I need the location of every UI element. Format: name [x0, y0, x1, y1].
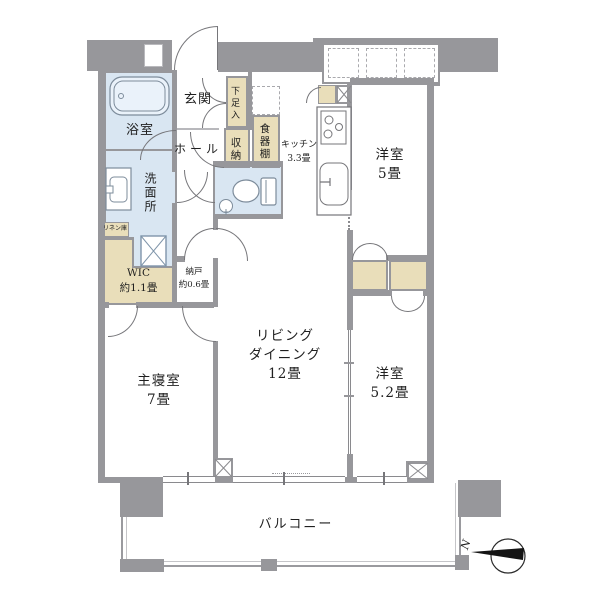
kitchen-label-line2: 3.3畳 — [270, 153, 328, 167]
washbasin-icon — [106, 168, 131, 210]
west5-label-line2: 5畳 — [352, 165, 428, 184]
genkan-label: 玄関 — [172, 91, 224, 109]
kitchen-label-line1: キッチン — [270, 139, 328, 153]
floor-plan: 玄関 ホール 下足入 収納 食器棚 キッチン 3.3畳 浴室 洗面所 リネン庫 … — [0, 0, 600, 600]
living-label-line1: リビング — [230, 327, 340, 346]
linen-label: リネン庫 — [101, 225, 129, 233]
west52-label-line2: 5.2畳 — [352, 384, 428, 403]
bedroom-label: 主寝室 7畳 — [112, 372, 206, 410]
west52-label-line1: 洋室 — [352, 365, 428, 384]
west5-label: 洋室 5畳 — [352, 146, 428, 184]
bathroom-label: 浴室 — [112, 122, 168, 140]
nando-label: 納戸 約0.6畳 — [173, 266, 215, 292]
west5-label-line1: 洋室 — [352, 146, 428, 165]
toilet-icon — [220, 178, 277, 215]
compass-icon — [471, 539, 525, 573]
washing-machine-icon — [141, 236, 166, 266]
storage-label: 収納 — [230, 134, 241, 164]
bedroom-label-line2: 7畳 — [112, 391, 206, 410]
nando-label-line1: 納戸 — [173, 266, 215, 279]
kitchen-label: キッチン 3.3畳 — [270, 139, 328, 166]
shoe-cabinet-label: 下足入 — [229, 81, 238, 126]
wic-label-line2: 約1.1畳 — [102, 281, 175, 296]
fixtures-layer — [0, 0, 600, 600]
bedroom-label-line1: 主寝室 — [112, 372, 206, 391]
west52-label: 洋室 5.2畳 — [352, 365, 428, 403]
wic-label-line1: WIC — [102, 266, 175, 281]
living-label-line3: 12畳 — [230, 365, 340, 384]
nando-label-line2: 約0.6畳 — [173, 279, 215, 292]
living-label-line2: ダイニング — [230, 346, 340, 365]
washroom-label: 洗面所 — [144, 165, 156, 220]
living-dining-label: リビング ダイニング 12畳 — [230, 327, 340, 384]
wic-label: WIC 約1.1畳 — [102, 266, 175, 296]
bathtub-icon — [110, 77, 169, 115]
cupboard-label: 食器棚 — [259, 121, 270, 163]
balcony-label: バルコニー — [238, 516, 354, 534]
hall-label: ホール — [169, 141, 227, 158]
